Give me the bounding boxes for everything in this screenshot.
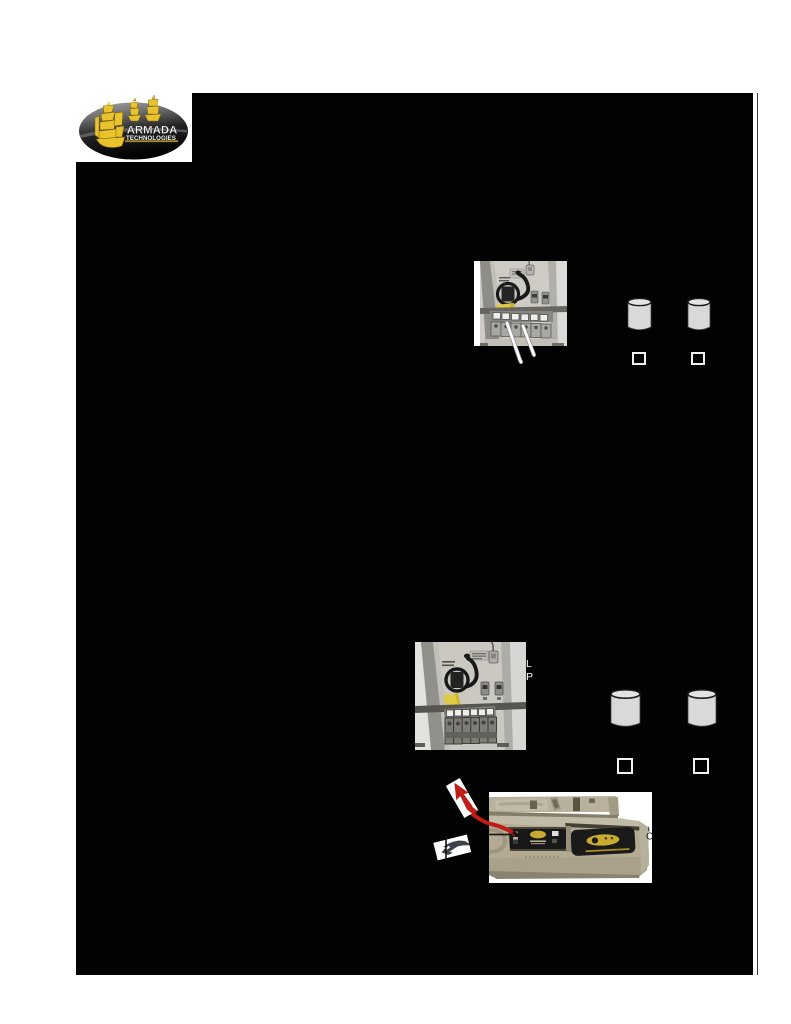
svg-text:L: L bbox=[526, 658, 532, 670]
svg-text:P: P bbox=[526, 671, 533, 683]
svg-text:C: C bbox=[646, 832, 653, 843]
